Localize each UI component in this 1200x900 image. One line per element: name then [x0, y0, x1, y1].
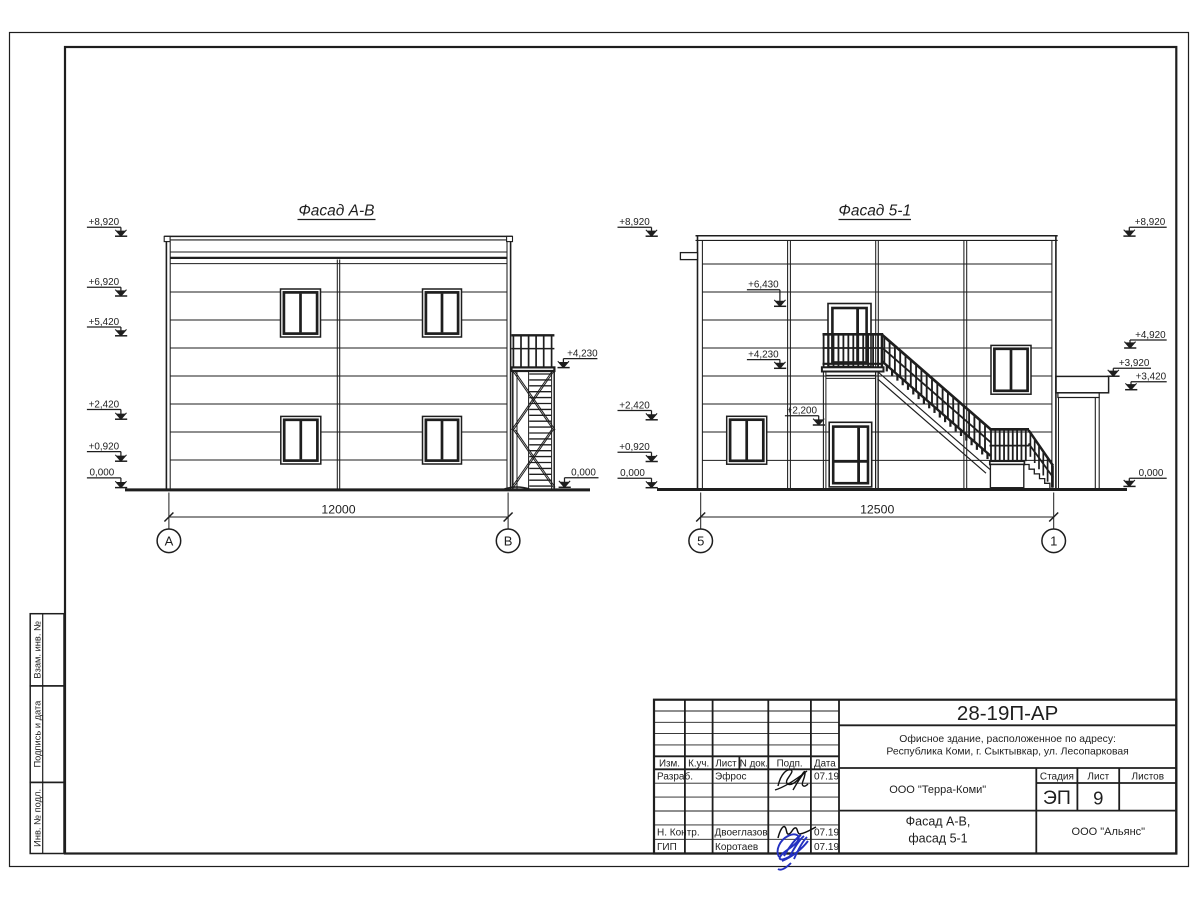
svg-text:Фасад А-В,: Фасад А-В, [906, 815, 971, 829]
svg-text:Разраб.: Разраб. [657, 771, 693, 783]
svg-text:0,000: 0,000 [571, 468, 596, 479]
svg-text:фасад 5-1: фасад 5-1 [908, 832, 967, 846]
svg-text:Фасад 5-1: Фасад 5-1 [839, 203, 912, 220]
svg-text:ООО "Альянс": ООО "Альянс" [1072, 826, 1146, 838]
svg-text:+4,920: +4,920 [1135, 330, 1166, 341]
svg-text:5: 5 [697, 534, 704, 549]
svg-text:Листов: Листов [1132, 772, 1165, 783]
svg-text:Офисное здание, расположенное: Офисное здание, расположенное по адресу: [899, 733, 1116, 745]
svg-text:0,000: 0,000 [90, 468, 115, 479]
svg-text:28-19П-АР: 28-19П-АР [957, 702, 1058, 725]
svg-text:9: 9 [1093, 787, 1103, 808]
svg-text:+4,230: +4,230 [567, 348, 598, 359]
svg-text:+8,920: +8,920 [619, 217, 650, 228]
svg-text:12000: 12000 [321, 503, 355, 517]
svg-text:Изм.: Изм. [659, 758, 680, 769]
svg-text:+4,230: +4,230 [748, 349, 779, 360]
svg-text:Эфрос: Эфрос [715, 771, 747, 783]
svg-text:Фасад А-В: Фасад А-В [298, 203, 374, 220]
svg-text:К.уч.: К.уч. [688, 758, 709, 769]
svg-text:Двоеглазов: Двоеглазов [715, 828, 768, 839]
svg-text:07.19: 07.19 [814, 842, 839, 853]
svg-text:+0,920: +0,920 [619, 442, 650, 453]
svg-text:+0,920: +0,920 [89, 441, 120, 452]
svg-text:ООО "Терра-Коми": ООО "Терра-Коми" [889, 784, 986, 796]
svg-text:Взам. инв. №: Взам. инв. № [33, 621, 43, 679]
svg-text:Инв. № подл.: Инв. № подл. [33, 789, 43, 847]
svg-text:+3,920: +3,920 [1119, 358, 1150, 369]
svg-text:Лист: Лист [715, 758, 737, 769]
svg-text:Лист: Лист [1087, 772, 1109, 783]
svg-text:+6,920: +6,920 [89, 277, 120, 288]
svg-text:+8,920: +8,920 [1135, 217, 1166, 228]
svg-text:+2,420: +2,420 [619, 400, 650, 411]
svg-text:В: В [504, 534, 513, 549]
svg-text:12500: 12500 [860, 503, 894, 517]
svg-text:+6,430: +6,430 [748, 280, 779, 291]
svg-text:Республика Коми, г. Сыктывкар,: Республика Коми, г. Сыктывкар, ул. Лесоп… [886, 746, 1128, 758]
svg-text:Подпись и дата: Подпись и дата [33, 700, 43, 768]
svg-text:ГИП: ГИП [657, 842, 677, 853]
svg-text:1: 1 [1050, 534, 1057, 549]
svg-text:+8,920: +8,920 [89, 217, 120, 228]
svg-text:А: А [165, 534, 174, 549]
svg-text:0,000: 0,000 [1139, 468, 1164, 479]
svg-text:Н. Контр.: Н. Контр. [657, 828, 700, 839]
svg-text:+5,420: +5,420 [89, 317, 120, 328]
svg-text:Подп.: Подп. [777, 758, 803, 769]
svg-text:+2,200: +2,200 [787, 406, 818, 417]
svg-text:+2,420: +2,420 [89, 399, 120, 410]
svg-text:ЭП: ЭП [1043, 787, 1071, 809]
svg-text:07.19: 07.19 [814, 772, 839, 783]
svg-text:Коротаев: Коротаев [715, 842, 758, 853]
svg-text:+3,420: +3,420 [1136, 372, 1167, 383]
svg-text:Стадия: Стадия [1040, 772, 1074, 783]
svg-text:07.19: 07.19 [814, 828, 839, 839]
svg-text:N док.: N док. [740, 758, 768, 769]
svg-text:0,000: 0,000 [620, 468, 645, 479]
svg-text:Дата: Дата [814, 758, 836, 769]
